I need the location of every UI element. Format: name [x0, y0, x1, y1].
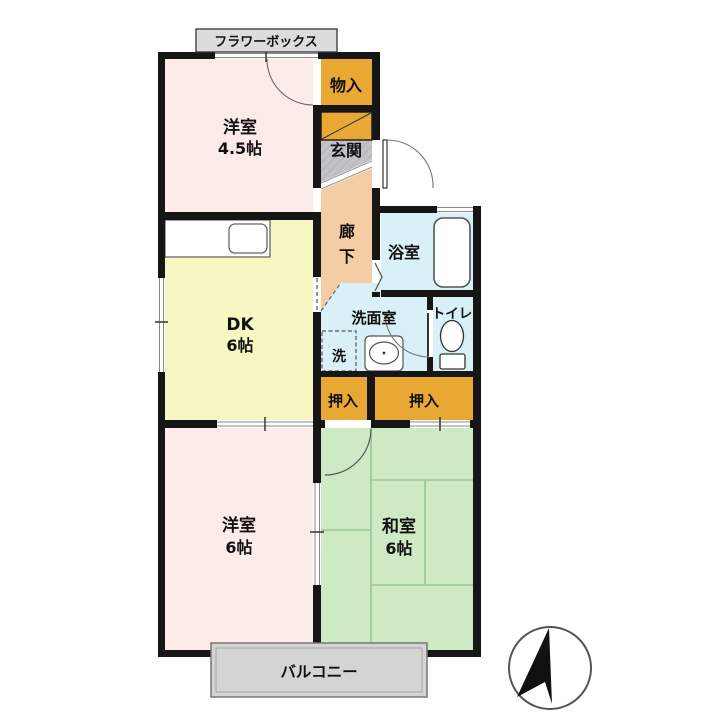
flower-box: フラワーボックス: [196, 29, 337, 52]
label-entrance: 玄関: [330, 141, 362, 160]
label-japanese-size: 6帖: [385, 539, 412, 558]
balcony-label: バルコニー: [280, 663, 357, 681]
label-hallway-2: 下: [339, 247, 355, 266]
label-laundry: 洗: [332, 348, 346, 365]
washbasin-drain: [383, 352, 386, 355]
kitchen-sink: [229, 224, 267, 253]
toilet-tank: [440, 354, 465, 369]
label-western-6-name: 洋室: [222, 515, 256, 536]
label-dk-size: 6帖: [226, 336, 253, 355]
label-western-4-5-size: 4.5帖: [218, 139, 262, 158]
label-toilet: トイレ: [432, 306, 473, 322]
label-closet-left: 押入: [328, 392, 358, 410]
flower-box-label: フラワーボックス: [214, 34, 318, 50]
compass: [509, 627, 591, 709]
toilet-bowl: [441, 321, 464, 352]
label-western-4-5-name: 洋室: [223, 117, 257, 138]
bathtub: [434, 218, 470, 287]
label-bathroom: 浴室: [388, 243, 420, 262]
entrance-door-arc: [387, 140, 433, 188]
label-dk-name: DK: [226, 315, 254, 335]
entrance-door-leaf: [383, 140, 387, 188]
label-hallway-1: 廊: [339, 222, 355, 241]
label-japanese-name: 和室: [382, 516, 416, 537]
label-western-6-size: 6帖: [225, 538, 252, 557]
label-storage: 物入: [330, 76, 362, 95]
balcony: バルコニー: [211, 643, 427, 697]
label-closet-right: 押入: [409, 392, 439, 410]
floorplan-drawing: フラワーボックス バルコニー 洋室 4.5帖 物入 玄関 廊 下 浴室 洗面室 …: [0, 0, 720, 720]
floorplan-page: フラワーボックス バルコニー 洋室 4.5帖 物入 玄関 廊 下 浴室 洗面室 …: [0, 0, 720, 720]
label-washroom: 洗面室: [351, 309, 396, 327]
